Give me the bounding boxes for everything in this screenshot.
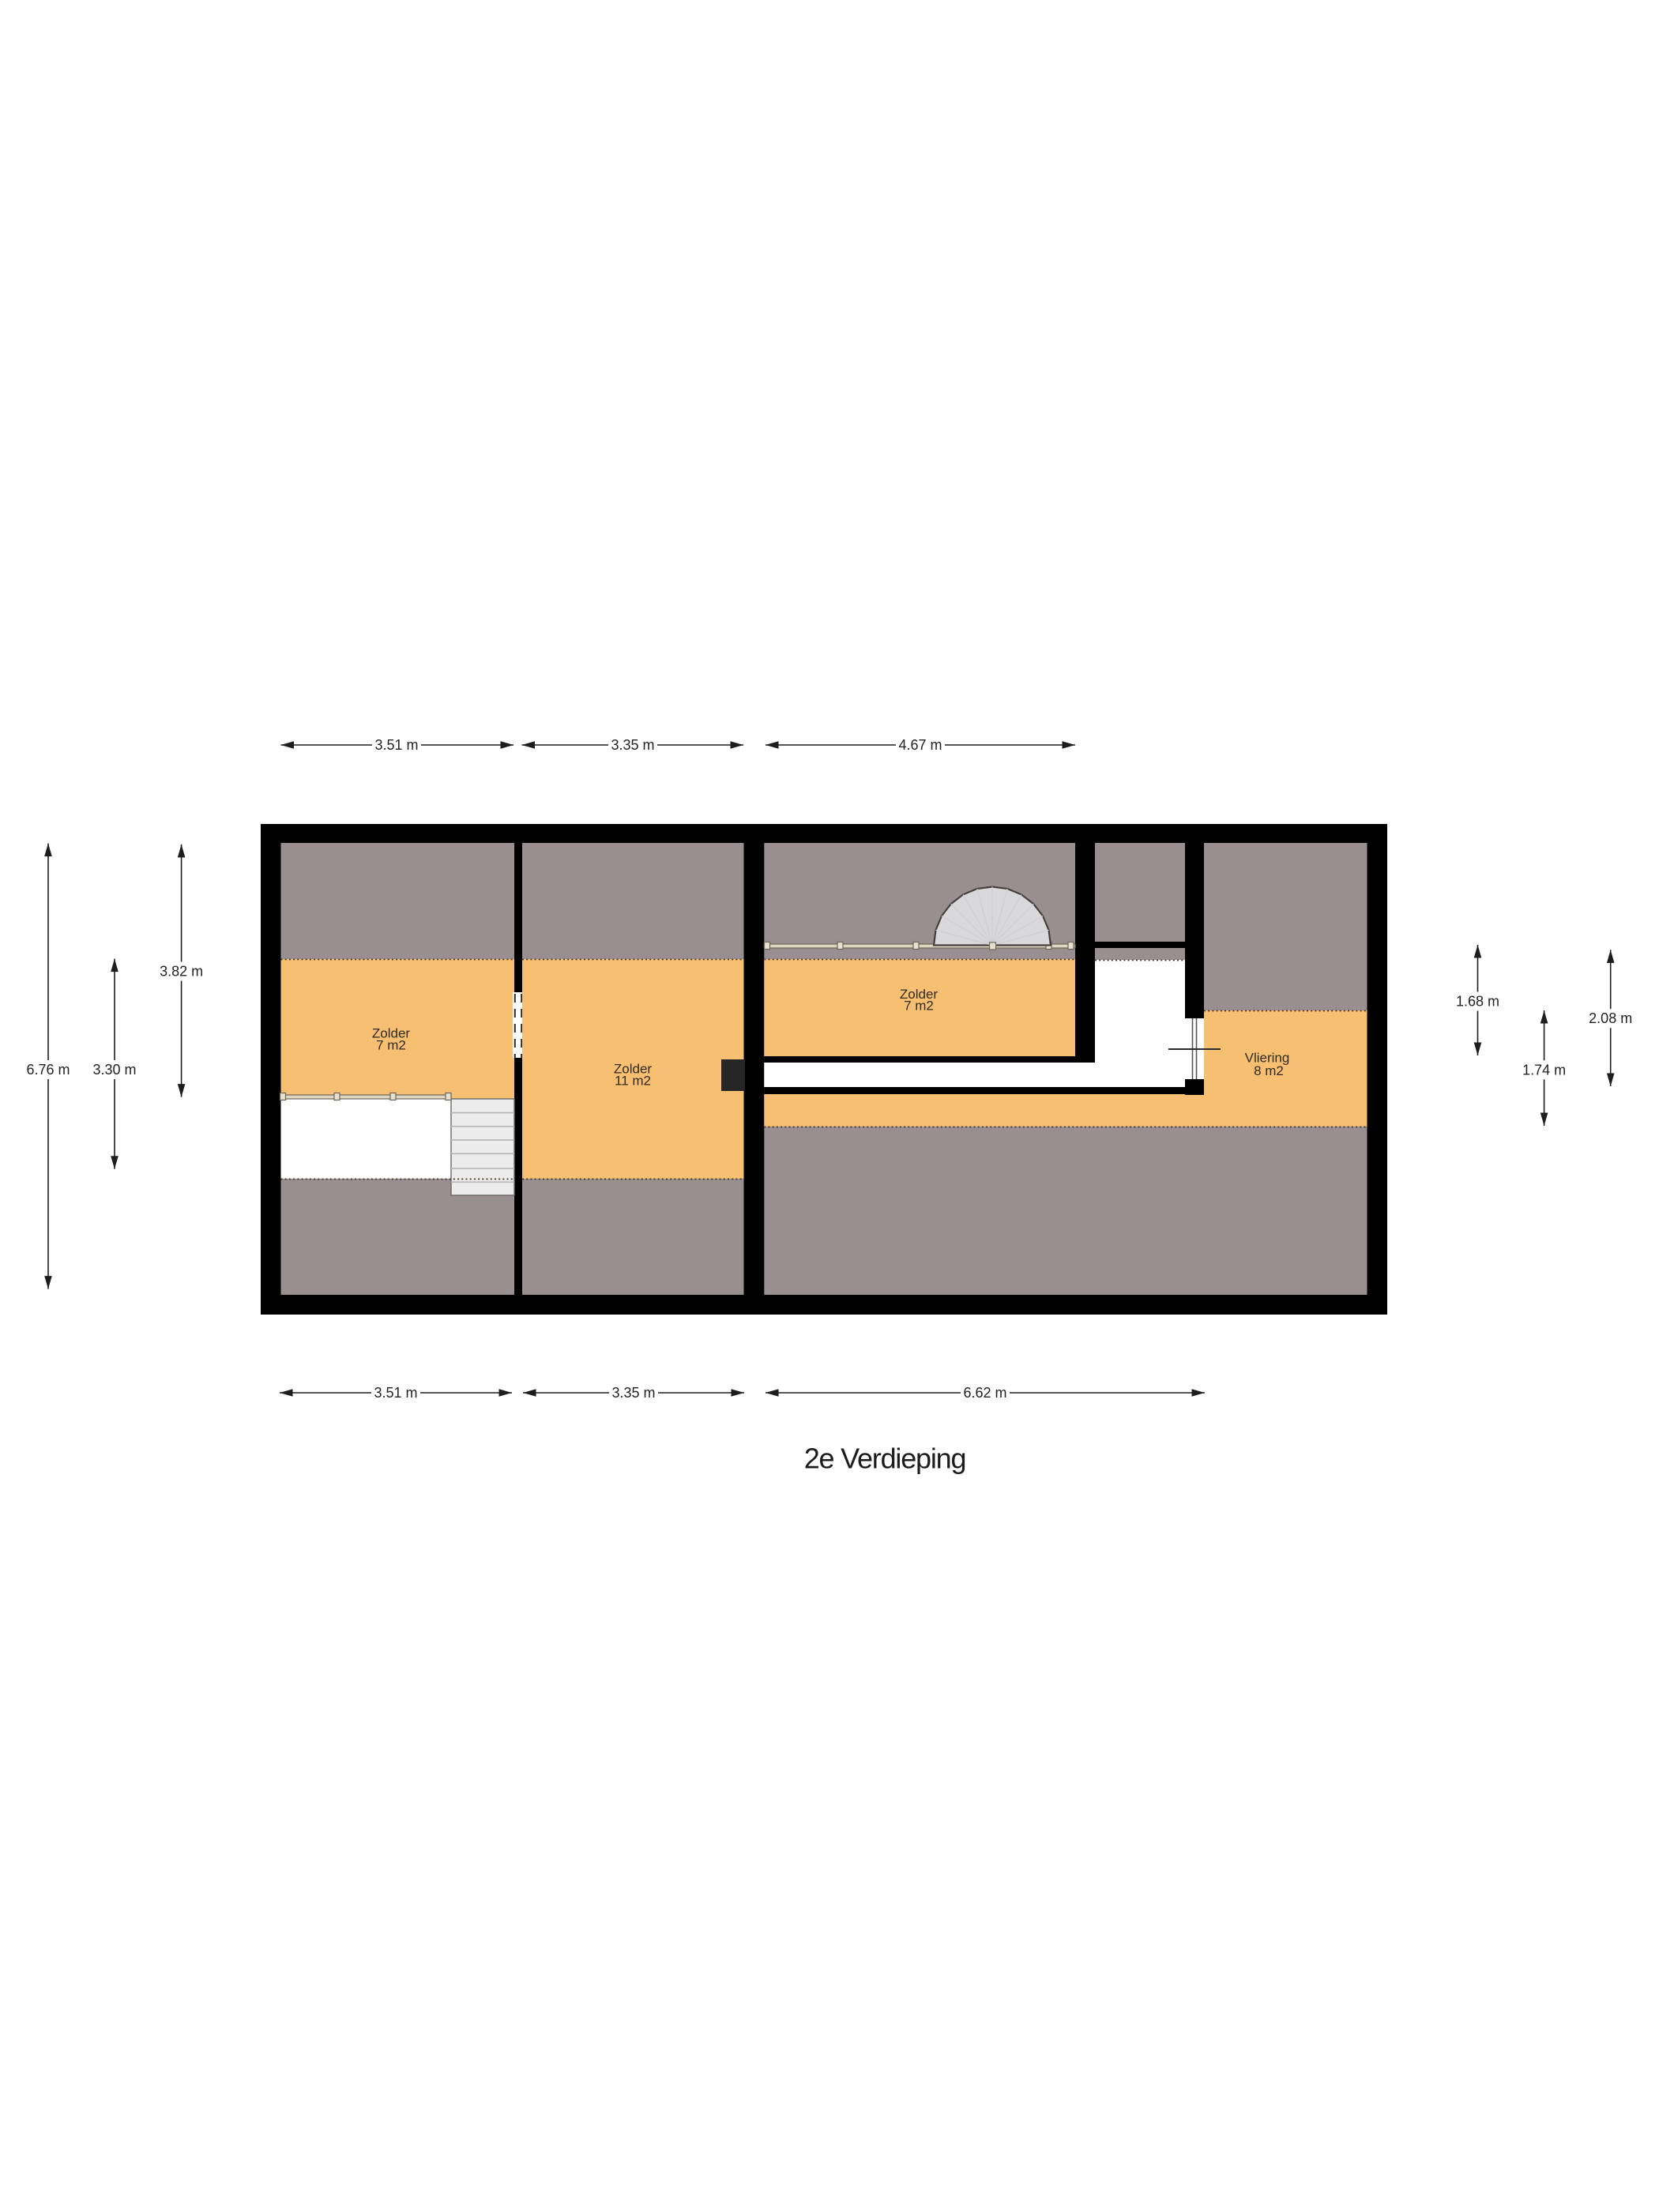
svg-text:3.30 m: 3.30 m xyxy=(92,1062,136,1078)
svg-text:7 m2: 7 m2 xyxy=(376,1038,406,1053)
svg-text:3.51 m: 3.51 m xyxy=(374,737,418,753)
svg-text:7 m2: 7 m2 xyxy=(904,999,934,1014)
svg-text:6.76 m: 6.76 m xyxy=(26,1062,70,1078)
svg-text:3.51 m: 3.51 m xyxy=(374,1385,417,1401)
svg-text:2e Verdieping: 2e Verdieping xyxy=(804,1443,966,1475)
svg-text:11 m2: 11 m2 xyxy=(615,1074,651,1089)
svg-text:8 m2: 8 m2 xyxy=(1254,1063,1284,1078)
svg-text:3.82 m: 3.82 m xyxy=(160,964,203,980)
svg-text:3.35 m: 3.35 m xyxy=(611,737,654,753)
svg-text:6.62 m: 6.62 m xyxy=(963,1385,1006,1401)
svg-text:3.35 m: 3.35 m xyxy=(611,1385,655,1401)
svg-text:2.08 m: 2.08 m xyxy=(1589,1010,1632,1026)
svg-text:1.74 m: 1.74 m xyxy=(1522,1062,1566,1078)
svg-text:1.68 m: 1.68 m xyxy=(1456,994,1499,1010)
svg-text:4.67 m: 4.67 m xyxy=(898,737,942,753)
